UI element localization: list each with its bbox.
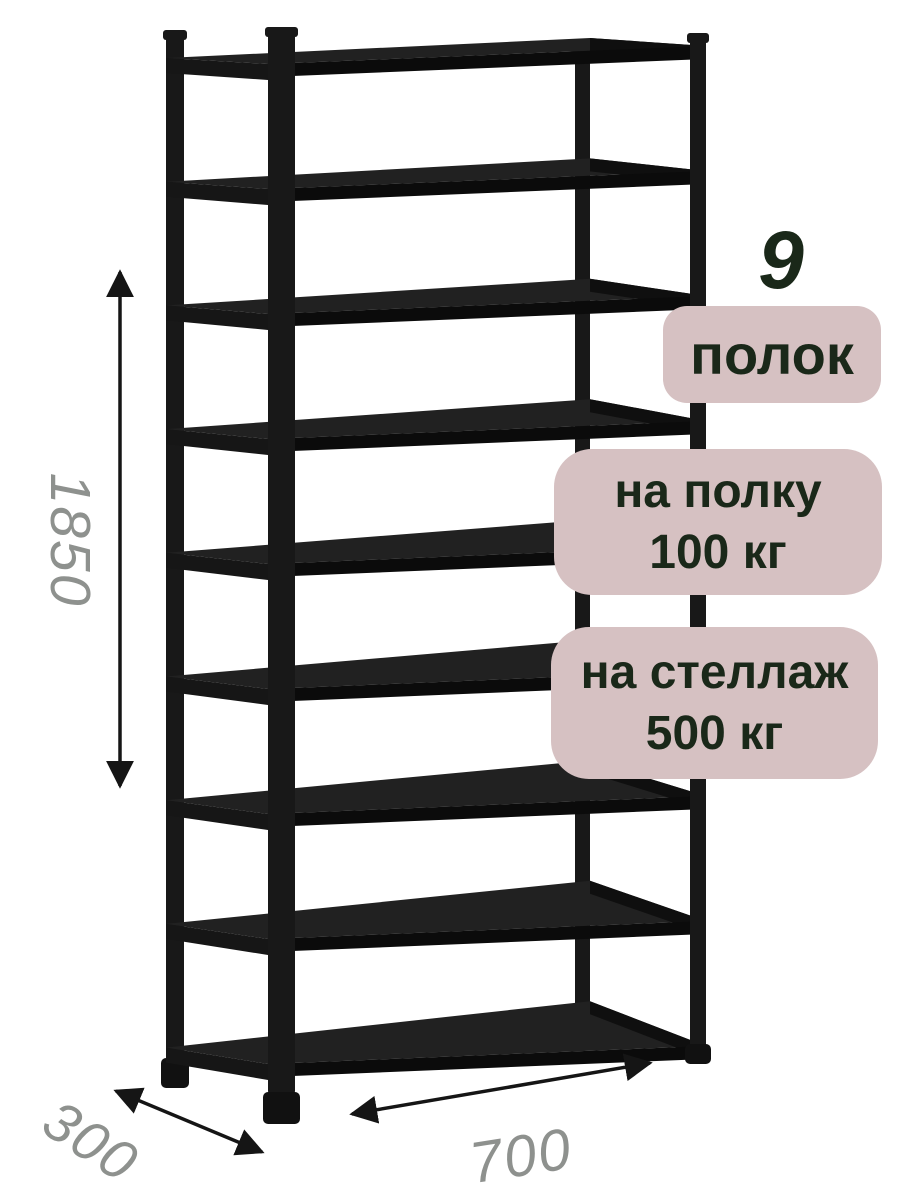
rack-load-badge: на стеллаж 500 кг [551,627,878,779]
product-image: 1850 300 700 9 полок на полку 100 кг на … [0,0,900,1200]
rack-load-line2: 500 кг [646,703,783,764]
front-left-post-foot [263,1092,300,1124]
shelf-slab [166,399,706,455]
shelf-load-badge: на полку 100 кг [554,449,882,595]
shelf-slab [166,158,706,205]
shelf-slab [166,279,706,330]
shelf-slab [166,881,706,955]
shelving-rack-illustration [0,0,900,1200]
rack-load-line1: на стеллаж [581,642,849,703]
shelf-count-badge: полок [663,306,881,403]
front-left-post [268,30,295,1094]
shelf-load-line1: на полку [614,461,821,522]
shelf-count-number: 9 [736,220,826,302]
back-left-post-cap [163,30,187,40]
front-right-post-foot [685,1044,711,1064]
front-left-post-cap [265,27,298,37]
shelf-count-badge-label: полок [690,322,854,387]
front-right-post-cap [687,33,709,43]
shelf-load-line2: 100 кг [649,522,786,583]
height-dimension-label: 1850 [37,473,103,608]
shelf-slab [166,38,706,80]
